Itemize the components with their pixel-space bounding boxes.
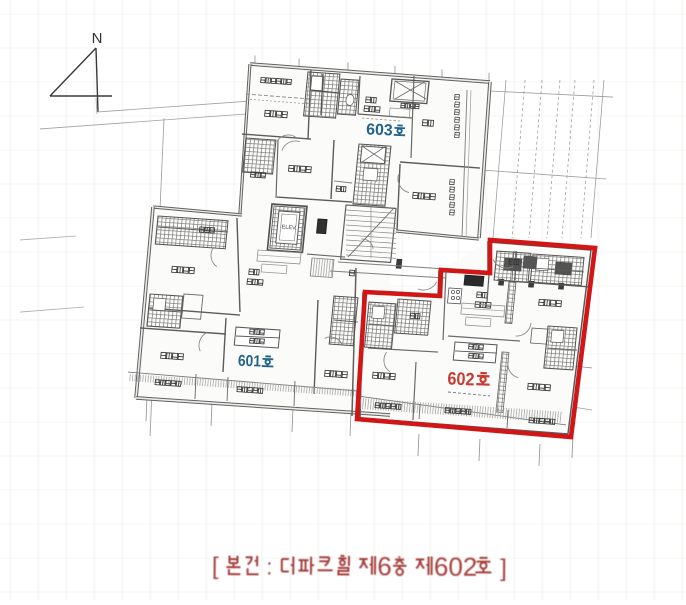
svg-text:[: [ [212,553,219,580]
svg-text:602: 602 [447,368,475,389]
svg-text:601: 601 [238,353,262,371]
svg-text:602: 602 [434,552,478,582]
svg-text::: : [266,554,272,579]
svg-text:6: 6 [377,551,392,581]
svg-text:603: 603 [366,121,393,139]
svg-text:]: ] [500,555,507,582]
svg-text:ELEV.: ELEV. [281,225,297,232]
svg-text:N: N [92,30,103,47]
